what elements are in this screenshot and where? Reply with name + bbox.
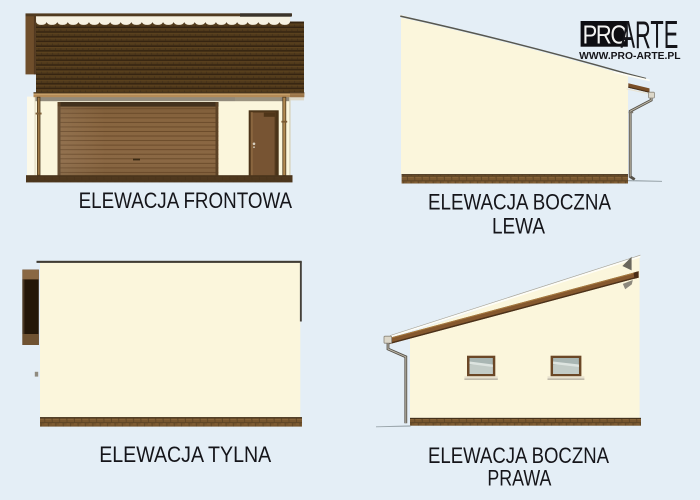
svg-text:ELEWACJA FRONTOWA: ELEWACJA FRONTOWA <box>79 188 293 213</box>
svg-text:ARTE: ARTE <box>621 12 679 56</box>
svg-text:LEWA: LEWA <box>492 213 545 238</box>
svg-text:PRO: PRO <box>583 19 627 49</box>
svg-text:WWW.PRO-ARTE.PL: WWW.PRO-ARTE.PL <box>579 51 680 62</box>
svg-text:PRAWA: PRAWA <box>487 466 551 491</box>
svg-text:ELEWACJA TYLNA: ELEWACJA TYLNA <box>99 442 271 467</box>
svg-text:ELEWACJA BOCZNA: ELEWACJA BOCZNA <box>428 443 609 468</box>
svg-text:ELEWACJA BOCZNA: ELEWACJA BOCZNA <box>428 190 611 215</box>
